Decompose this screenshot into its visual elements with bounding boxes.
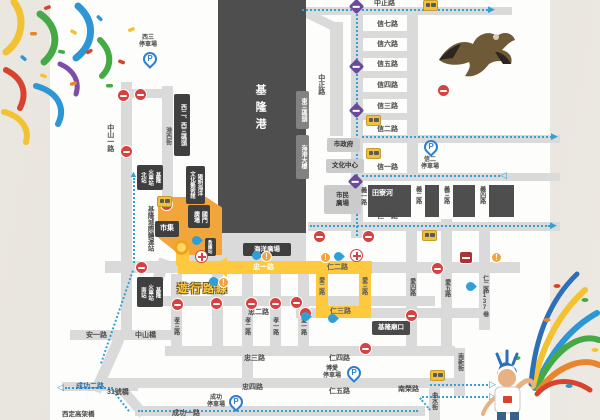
bus-stop-icon <box>430 370 445 381</box>
alert-icon: ! <box>320 252 331 263</box>
river-label: 田寮河 <box>372 190 393 198</box>
street-ren5: 仁五路 <box>329 388 350 396</box>
no-entry-sign <box>210 297 223 310</box>
keelung-parade-map: 基隆港 田寮河 遊行路線 忠一路 仁二路 仁三路 愛二路 愛三路 ▶ ▶ ◁ ▶… <box>0 0 600 420</box>
station-north-c1: 基隆 <box>154 172 160 183</box>
civic-line1: 市民 <box>336 192 349 199</box>
street-ren4: 仁四路 <box>329 355 350 363</box>
street-xiao2: 孝二路 <box>243 317 250 335</box>
detour-zhongzheng <box>302 9 488 11</box>
street-zhongzheng-top: 中正路 <box>374 0 395 8</box>
no-entry-sign <box>431 262 444 275</box>
street-an1: 安一路 <box>86 332 107 340</box>
route-ren2-label: 仁二路 <box>327 264 348 272</box>
detour-arrow-right-icon: ▶ <box>488 5 495 14</box>
road-xiao1 <box>270 274 281 350</box>
station-south-c2: 火車站 <box>147 284 153 301</box>
road-xin5 <box>362 71 418 78</box>
detour-arrow-left-open-icon: ◁ <box>57 383 64 392</box>
first-aid-cross-icon <box>195 250 208 263</box>
first-aid-cross-icon <box>350 249 363 262</box>
street-zhongshan-bridge: 中山橋 <box>135 332 156 340</box>
parking-xin2-label: 信二 停車場 <box>421 157 439 170</box>
parking-p-icon: P <box>349 368 359 378</box>
pier-e3-label: 東三碼頭 <box>299 98 306 122</box>
street-ai4: 愛四路 <box>408 278 415 296</box>
street-xin2: 信二路 <box>377 126 398 134</box>
harbor-building-label: 海港大樓 <box>299 145 306 169</box>
street-xin6: 信六路 <box>377 41 398 49</box>
detour-ren1 <box>310 225 550 227</box>
civic-line2: 廣場 <box>336 200 349 207</box>
bus-stop-icon <box>157 196 172 207</box>
road-xin6 <box>362 51 418 58</box>
no-entry-sign <box>171 298 184 311</box>
parade-direction-arrow <box>212 257 227 277</box>
badge-civic-plaza: 市民 廣場 <box>324 185 361 214</box>
street-yi4: 義四路 <box>478 186 485 204</box>
bus-stop-icon <box>423 0 438 11</box>
road-zhongzheng-v <box>330 22 343 136</box>
detour-arrow-right-icon: ▶ <box>551 132 558 141</box>
street-zhong2: 忠二路 <box>248 309 269 317</box>
confetti-top-left <box>0 0 175 145</box>
no-entry-sign <box>362 230 375 243</box>
badge-pier-w23: 西二、西三碼頭 <box>174 94 190 156</box>
yangming-line2: 文化藝術館 <box>189 171 195 199</box>
route-zhong1-label: 忠一路 <box>253 264 274 272</box>
no-entry-sign <box>359 342 372 355</box>
bus-stop-icon <box>422 230 437 241</box>
road-xin7 <box>362 31 418 38</box>
street-chenggong1: 成功一路 <box>172 410 200 418</box>
no-entry-sign <box>437 84 450 97</box>
station-south-c3: 南站 <box>140 287 146 298</box>
badge-station-south: 基隆 火車站 南站 <box>137 277 163 307</box>
road-xin4 <box>362 92 418 99</box>
guomen-c2: 廣場 <box>192 211 199 223</box>
terminal-label: 基隆城際轉運站 <box>146 206 153 252</box>
street-xiao1: 孝一路 <box>271 317 278 335</box>
no-entry-sign <box>269 297 282 310</box>
street-ren1: 仁一路 <box>377 213 398 221</box>
street-ai5: 愛五路 <box>443 279 450 297</box>
no-entry-sign <box>405 309 418 322</box>
route-ai3-label: 愛三路 <box>360 277 367 295</box>
badge-miaokou: 基隆廟口 <box>372 321 410 335</box>
street-yi2: 義二路 <box>414 186 421 204</box>
badge-yangming-museum: 陽明海洋 文化藝術館 <box>186 166 205 204</box>
street-zhongzheng-v: 中正路 <box>317 74 325 95</box>
badge-pier-e3: 東三碼頭 <box>296 91 309 129</box>
parking-boai-l2: 停車場 <box>323 373 341 380</box>
street-xin4: 信四路 <box>377 82 398 90</box>
alert-icon: ! <box>218 277 229 288</box>
guomen-c1: 國門 <box>200 211 207 223</box>
street-xin5: 信五路 <box>377 61 398 69</box>
badge-station-north: 基隆 火車站 北站 <box>137 165 163 190</box>
badge-harbor-building: 海港大樓 <box>296 135 309 179</box>
detour-xin2 <box>362 136 552 138</box>
street-xin1: 信一路 <box>377 164 398 172</box>
alert-icon: ! <box>261 251 272 262</box>
parking-boai-l1: 博愛 <box>323 366 341 373</box>
street-zhong4: 忠四路 <box>242 384 263 392</box>
badge-city-hall: 市政府 <box>327 138 360 152</box>
route-ai2-label: 愛二路 <box>317 277 324 295</box>
badge-culture-center: 文化中心 <box>326 159 364 173</box>
no-entry-sign <box>313 230 326 243</box>
parking-p-icon: P <box>231 397 241 407</box>
badge-market: 市集 <box>155 221 179 237</box>
street-xiding-viaduct: 西定高架橋 <box>62 411 95 418</box>
street-zhong3: 忠三路 <box>244 355 265 363</box>
street-qushui: 曲水街 <box>430 392 437 410</box>
parking-cg-l2: 停車場 <box>207 402 225 409</box>
no-entry-sign <box>245 297 258 310</box>
pier-w23-label: 西二、西三碼頭 <box>179 104 186 146</box>
yangming-line1: 陽明海洋 <box>196 174 202 196</box>
bus-stop-icon <box>366 115 381 126</box>
no-entry-sign <box>135 261 148 274</box>
parking-xin2-l2: 停車場 <box>421 164 439 171</box>
parking-boai-label: 博愛 停車場 <box>323 366 341 379</box>
street-xin7: 信七路 <box>377 21 398 29</box>
parking-chenggong-label: 成功 停車場 <box>207 395 225 408</box>
street-chenggong2: 成功二路 <box>76 383 104 391</box>
station-north-c3: 北站 <box>140 172 146 183</box>
dancer-figure <box>483 351 534 420</box>
first-aid-label: 救護站 <box>208 240 213 254</box>
street-xiao3: 孝三路 <box>172 317 179 335</box>
harbor-label: 基隆港 <box>254 84 266 135</box>
bus-stop-icon <box>366 148 381 159</box>
detour-arrow-left-open-icon: ◁ <box>500 171 507 180</box>
parade-start-node <box>174 240 189 255</box>
parking-xin2-l1: 信二 <box>421 157 439 164</box>
detour-west <box>133 178 135 263</box>
detour-arrow-right-icon: ▶ <box>550 221 557 230</box>
station-north-c2: 火車站 <box>147 169 153 186</box>
station-south-c1: 基隆 <box>154 287 160 298</box>
badge-guomen-plaza: 國門 廣場 <box>188 205 210 228</box>
street-bridge31: 31號橋 <box>107 389 129 397</box>
parking-cg-l1: 成功 <box>207 395 225 402</box>
detour-xin1 <box>362 175 500 177</box>
street-yi3: 義三路 <box>442 186 449 204</box>
parking-p-icon: P <box>426 142 436 152</box>
eagle-illustration <box>437 24 517 84</box>
street-xin3: 信三路 <box>377 103 398 111</box>
street-nanrong: 南榮路 <box>398 386 419 394</box>
no-entry-sign <box>120 145 133 158</box>
dancer-streamers-bottom-right <box>455 258 600 420</box>
